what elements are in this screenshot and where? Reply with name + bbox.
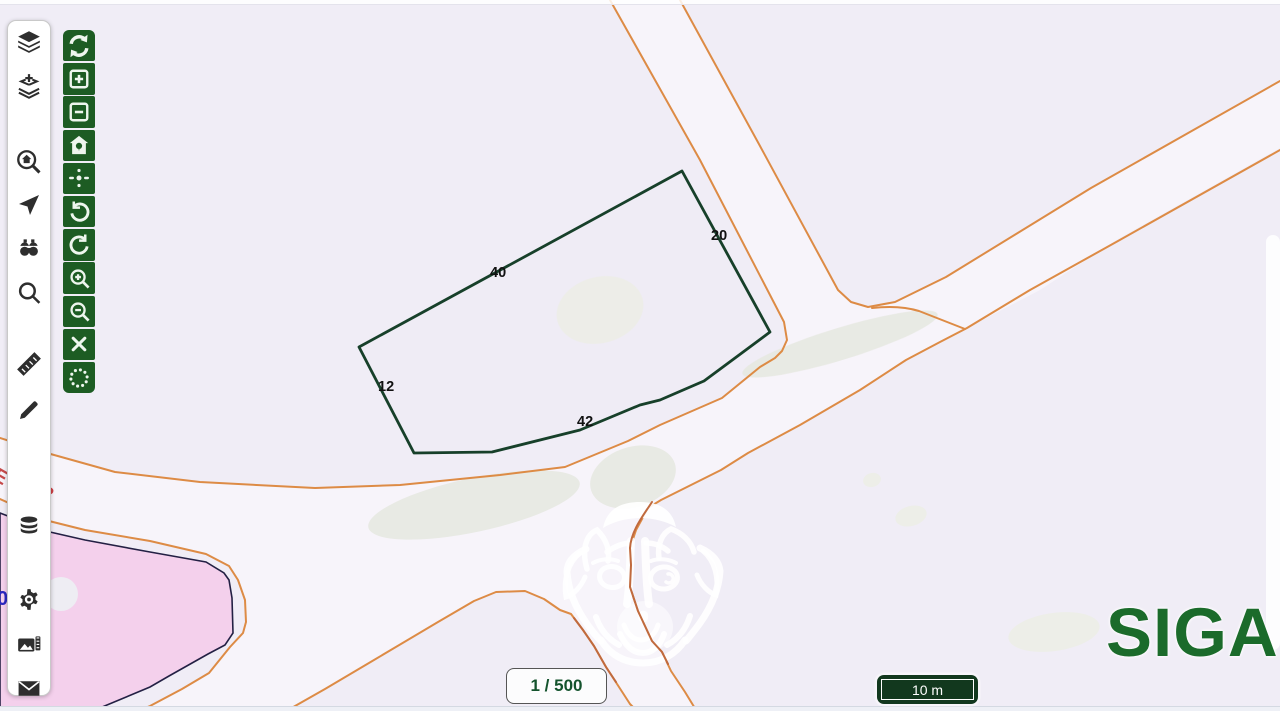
svg-text:12: 12	[378, 379, 394, 395]
svg-text:42: 42	[577, 414, 593, 430]
svg-text:40: 40	[490, 265, 506, 281]
svg-text:20: 20	[711, 228, 727, 244]
